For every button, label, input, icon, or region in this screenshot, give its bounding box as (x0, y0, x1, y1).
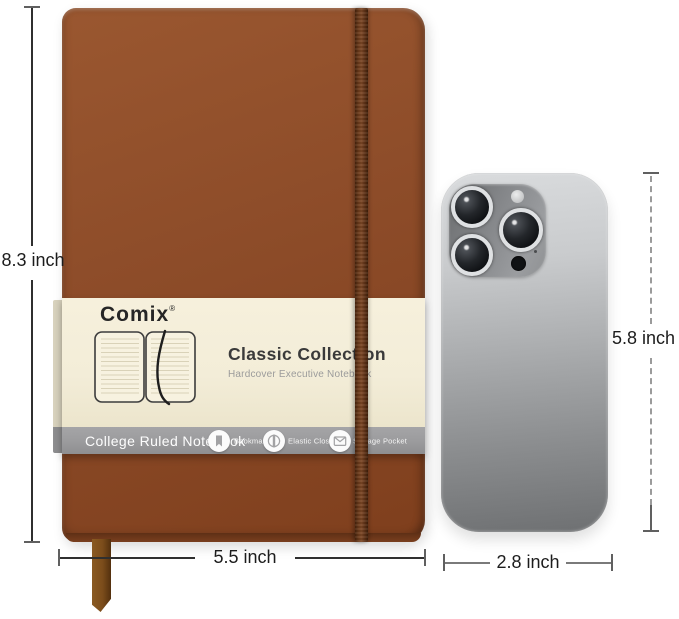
notebook-width-line (60, 557, 195, 559)
dimension-cap (611, 554, 613, 571)
notebook-cover (62, 8, 425, 542)
mic-dot (534, 250, 537, 253)
phone-width-label: 2.8 inch (490, 552, 566, 573)
dimension-cap (643, 530, 659, 532)
camera-lens-top-left (451, 186, 493, 228)
phone-height-line (650, 176, 652, 324)
feature-pocket (329, 430, 351, 452)
camera-lens-bottom-left (451, 234, 493, 276)
belly-band: Comix® Classic Collection Hardcover Exec… (62, 298, 425, 454)
elastic-closure-band (355, 8, 368, 542)
camera-lens-right (499, 208, 543, 252)
dimension-cap (424, 549, 426, 566)
notebook-width-line (295, 557, 424, 559)
open-notebook-illustration (93, 329, 197, 407)
notebook-height-line (31, 8, 33, 246)
feature-strip: College Ruled Notebook Bookmark Elastic … (62, 427, 425, 454)
notebook-width-label: 5.5 inch (195, 547, 295, 568)
feature-elastic-closure (263, 430, 285, 452)
phone-height-line (650, 358, 652, 505)
notebook-height-line (31, 280, 33, 541)
pocket-icon (333, 434, 347, 448)
bookmark-icon (212, 434, 226, 448)
phone (441, 173, 608, 532)
phone-width-line (445, 562, 490, 564)
belly-band-cream-panel: Comix® Classic Collection Hardcover Exec… (62, 298, 425, 427)
flash-led (511, 190, 524, 203)
dimension-cap (24, 541, 40, 543)
collection-subtitle: Hardcover Executive Notebook (228, 369, 371, 380)
phone-height-line (650, 505, 652, 531)
notebook-height-label: 8.3 inch (0, 250, 66, 271)
product-photo-stage: Comix® Classic Collection Hardcover Exec… (0, 0, 679, 619)
brand-logo: Comix® (100, 303, 175, 327)
phone-width-line (566, 562, 611, 564)
elastic-closure-icon (267, 434, 281, 448)
brand-name: Comix (100, 303, 169, 326)
dimension-cap (643, 172, 659, 174)
camera-module (449, 184, 546, 277)
feature-bookmark (208, 430, 230, 452)
phone-height-label: 5.8 inch (608, 328, 679, 349)
registered-mark: ® (169, 304, 175, 313)
lidar-sensor (511, 256, 526, 271)
bookmark-ribbon (92, 539, 111, 612)
